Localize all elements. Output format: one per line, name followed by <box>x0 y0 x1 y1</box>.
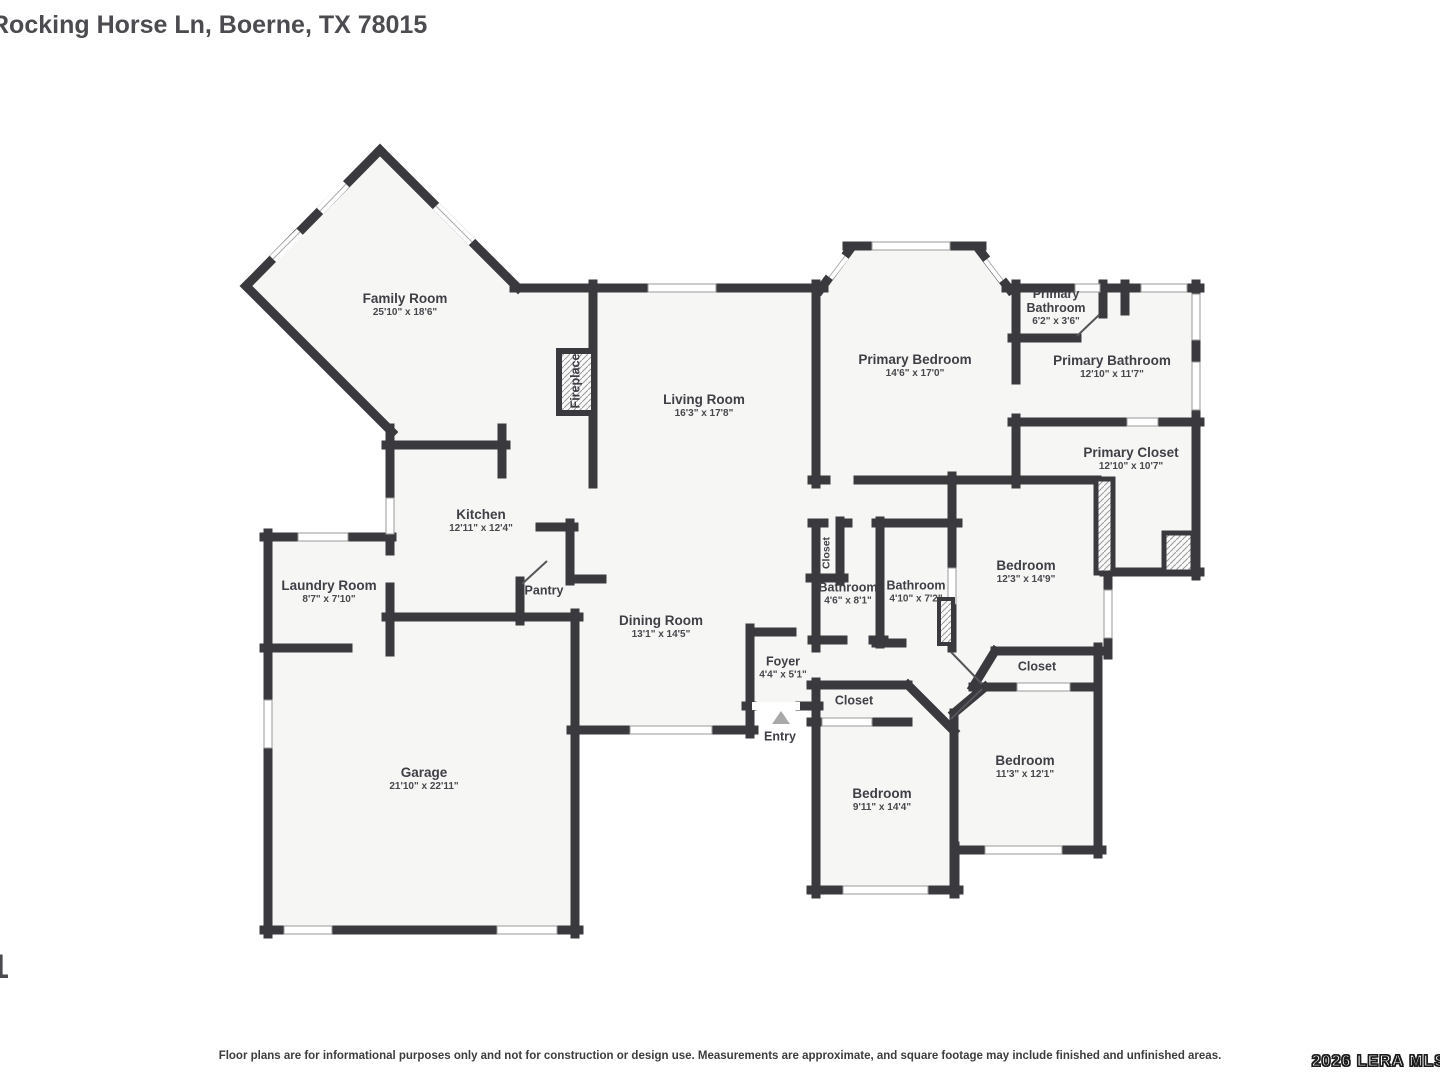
room-label-bathroom-1: Bathroom 4'6" x 8'1" <box>818 581 877 608</box>
room-label-entry: Entry <box>764 730 796 745</box>
room-label-pantry: Pantry <box>525 584 564 599</box>
mls-watermark: 2026 LERA MLS <box>1312 1053 1440 1071</box>
room-label-bathroom-2: Bathroom 4'10" x 7'2" <box>886 579 945 606</box>
floor-plan-drawing <box>0 0 1440 1080</box>
room-label-closet-bed2: Closet <box>1018 660 1056 675</box>
room-label-primary-bedroom: Primary Bedroom 14'6" x 17'0" <box>858 352 971 380</box>
room-label-primary-bathroom: Primary Bathroom 12'10" x 11'7" <box>1053 353 1171 381</box>
closet-chase-strip <box>1096 479 1113 573</box>
room-label-foyer: Foyer 4'4" x 5'1" <box>759 655 807 682</box>
room-label-bedroom-2: Bedroom 11'3" x 12'1" <box>995 753 1054 781</box>
room-label-dining-room: Dining Room 13'1" x 14'5" <box>619 613 703 641</box>
room-label-family-room: Family Room 25'10" x 18'6" <box>363 291 448 319</box>
room-label-living-room: Living Room 16'3" x 17'8" <box>663 392 745 420</box>
room-label-bedroom-1: Bedroom 12'3" x 14'9" <box>996 558 1055 586</box>
room-label-primary-closet: Primary Closet 12'10" x 10'7" <box>1083 445 1178 473</box>
room-label-garage: Garage 21'10" x 22'11" <box>389 765 458 793</box>
floor-plan-page: Rocking Horse Ln, Boerne, TX 78015 <box>0 0 1440 1080</box>
room-label-primary-bathroom-small: Primary Bathroom 6'2" x 3'6" <box>1013 287 1099 327</box>
shower-box <box>939 599 953 644</box>
page-number: 1 <box>0 948 9 987</box>
room-label-kitchen: Kitchen 12'11" x 12'4" <box>449 507 513 535</box>
room-label-closet-hall: Closet <box>821 537 834 569</box>
room-label-laundry-room: Laundry Room 8'7" x 7'10" <box>281 578 376 606</box>
room-label-bedroom-3: Bedroom 9'11" x 14'4" <box>852 786 911 814</box>
room-label-fireplace: Fireplace <box>569 354 584 409</box>
closet-corner-box <box>1164 533 1193 572</box>
room-label-closet-bed3: Closet <box>835 694 873 709</box>
disclaimer-text: Floor plans are for informational purpos… <box>0 1050 1440 1062</box>
entry-arrow-icon <box>772 711 790 724</box>
